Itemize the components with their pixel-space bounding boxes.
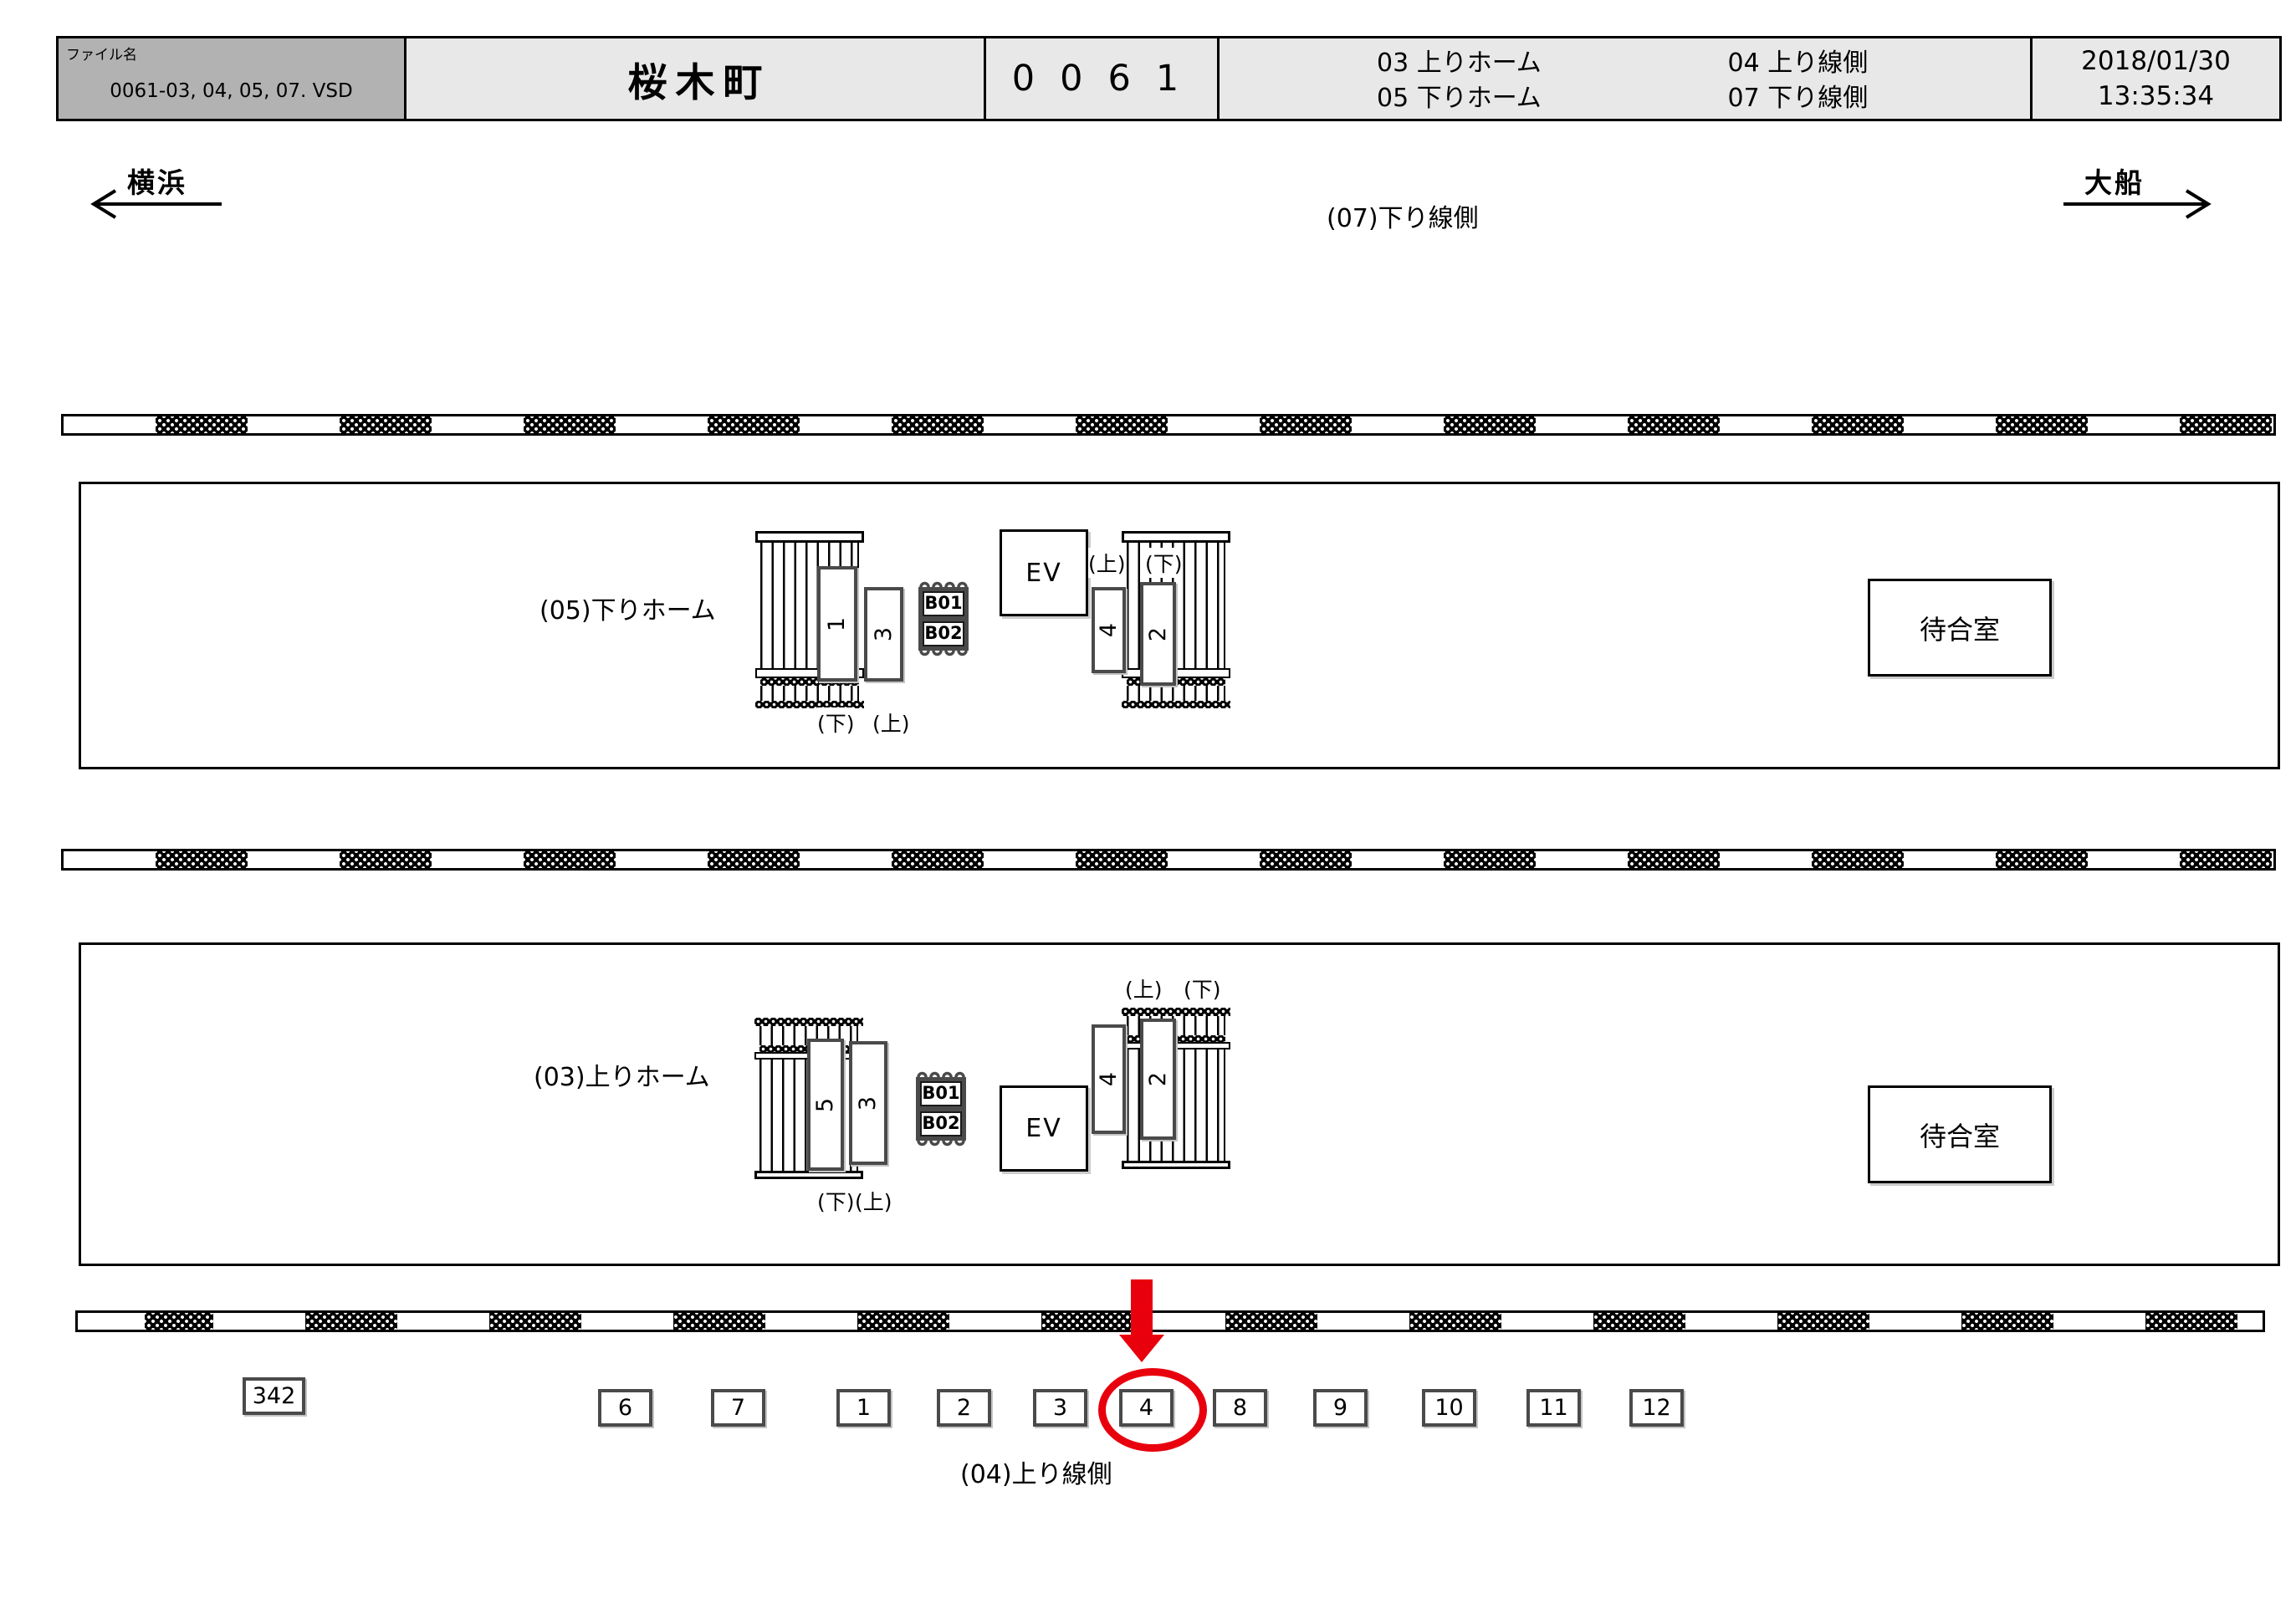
position-box-12[interactable]: 12	[1629, 1389, 1684, 1427]
station-diagram-page: ファイル名 0061-03, 04, 05, 07. VSD 桜木町 0061 …	[0, 0, 2296, 1624]
stamp-scallop-bottom	[918, 651, 969, 660]
escalator-down-label: (下)	[817, 707, 855, 738]
platform-05-label: (05)下りホーム	[539, 590, 716, 626]
file-name-label: ファイル名	[66, 43, 137, 64]
legend-03: 03 上りホーム	[1377, 46, 1720, 81]
stamp-scallop-bottom	[916, 1141, 966, 1150]
escalator-up-label: (上)	[855, 1186, 892, 1216]
position-box-2[interactable]: 2	[937, 1389, 991, 1427]
highlight-arrow-shaft	[1131, 1279, 1153, 1335]
escalator-up-label: (上)	[872, 707, 910, 738]
escalator-down-label: (下)	[817, 1186, 855, 1216]
station-code: 0061	[984, 38, 1217, 119]
escalator-down-label: (下)	[1145, 548, 1183, 578]
platform-03-up: (03)上りホーム (上) (下) 5 3 B01 B02 EV	[79, 942, 2280, 1266]
position-box-6[interactable]: 6	[598, 1389, 652, 1427]
position-box-9[interactable]: 9	[1313, 1389, 1368, 1427]
stamp-scallop-top	[916, 1068, 966, 1077]
stair-plate: 4	[1092, 1024, 1126, 1134]
right-arrow-icon	[2051, 184, 2227, 224]
escalator-down-label: (下)	[1184, 973, 1221, 1004]
stamp-scallop-top	[918, 578, 969, 587]
header-cell-filename: ファイル名 0061-03, 04, 05, 07. VSD	[59, 38, 404, 119]
direction-right: 大船	[2051, 161, 2227, 227]
header-datetime: 2018/01/30 13:35:34	[2030, 38, 2279, 119]
position-box-10[interactable]: 10	[1422, 1389, 1476, 1427]
position-box-1[interactable]: 1	[836, 1389, 891, 1427]
platform-05-down: (05)下りホーム 1 3 B01 B02 EV (上) (下)	[79, 482, 2280, 769]
time-value: 13:35:34	[2098, 79, 2214, 114]
highlight-circle	[1098, 1368, 1207, 1452]
position-box-3[interactable]: 3	[1033, 1389, 1087, 1427]
position-box-11[interactable]: 11	[1526, 1389, 1581, 1427]
file-name-value: 0061-03, 04, 05, 07. VSD	[59, 80, 404, 102]
elevator-box: EV	[1000, 529, 1088, 616]
legend-05: 05 下りホーム	[1377, 81, 1720, 116]
area-label-07: (07)下り線側	[1327, 197, 1479, 234]
legend-04: 04 上り線側	[1728, 46, 1869, 81]
platform-03-label: (03)上りホーム	[534, 1056, 710, 1093]
stamp-label-b01: B01	[923, 591, 964, 616]
station-name: 桜木町	[404, 38, 984, 119]
area-label-04: (04)上り線側	[960, 1453, 1112, 1490]
elevator-box: EV	[1000, 1085, 1088, 1172]
position-box-7[interactable]: 7	[711, 1389, 765, 1427]
stair-plate: 3	[849, 1041, 887, 1165]
escalator-up-label: (上)	[1088, 548, 1126, 578]
stamp-label-b02: B02	[923, 621, 964, 646]
stair-plate: 2	[1140, 1019, 1176, 1140]
header-table: ファイル名 0061-03, 04, 05, 07. VSD 桜木町 0061 …	[56, 36, 2282, 121]
track-bar-middle	[61, 849, 2276, 871]
sign-stamp-b01-b02: B01 B02	[918, 578, 969, 660]
track-bar-top	[61, 414, 2276, 436]
waiting-room-box: 待合室	[1868, 579, 2052, 677]
stair-plate: 2	[1140, 582, 1176, 686]
legend-07: 07 下り線側	[1728, 81, 1869, 116]
escalator-up-label: (上)	[1125, 973, 1163, 1004]
track-bar-bottom	[75, 1310, 2265, 1332]
position-box-342[interactable]: 342	[243, 1377, 305, 1415]
header-legend: 03 上りホーム 04 上り線側 05 下りホーム 07 下り線側	[1217, 38, 2030, 119]
position-box-8[interactable]: 8	[1213, 1389, 1267, 1427]
direction-left: 横浜	[84, 161, 259, 227]
date-value: 2018/01/30	[2081, 43, 2231, 79]
stair-plate: 4	[1092, 587, 1126, 673]
stair-plate: 3	[864, 587, 903, 682]
stair-plate: 1	[817, 566, 857, 682]
sign-stamp-b01-b02: B01 B02	[916, 1068, 966, 1150]
left-arrow-icon	[84, 184, 243, 224]
stamp-label-b02: B02	[920, 1111, 962, 1136]
stair-plate: 5	[807, 1039, 844, 1171]
stamp-label-b01: B01	[920, 1081, 962, 1106]
stairs	[1122, 1008, 1230, 1169]
highlight-arrow-icon	[1119, 1335, 1164, 1362]
waiting-room-box: 待合室	[1868, 1085, 2052, 1183]
